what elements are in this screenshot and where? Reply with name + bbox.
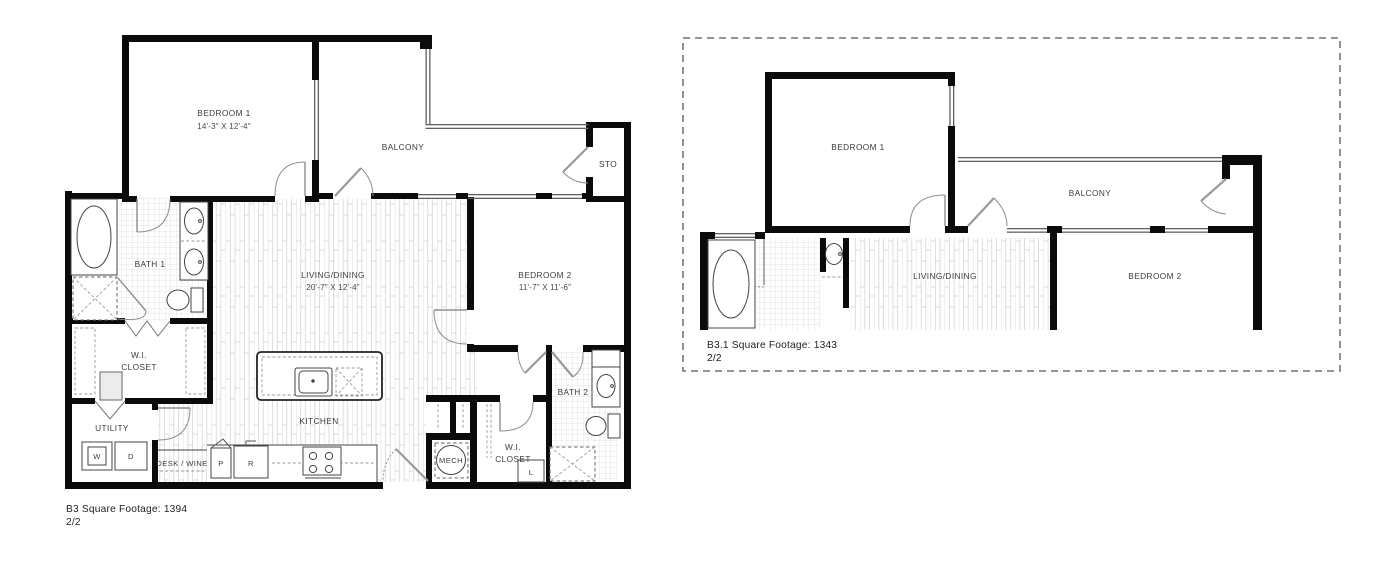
plan-b3: BEDROOM 1 14'-3" X 12'-4" BALCONY STO BA… <box>65 35 631 528</box>
kitchen-counter <box>207 445 377 482</box>
b31-living-wood-floor <box>851 238 1050 330</box>
b31-balcony-label: BALCONY <box>1069 188 1112 198</box>
b31-living-dining-label: LIVING/DINING <box>913 271 977 281</box>
bath1-label: BATH 1 <box>135 259 166 269</box>
utility-label: UTILITY <box>95 423 129 433</box>
b31-balcony-door <box>968 198 994 226</box>
plan-b3-floors <box>71 197 618 482</box>
closet1-shelves-left <box>75 328 95 394</box>
plan-b3-windows <box>314 49 589 199</box>
wi-closet1-label-line1: W.I. <box>131 350 147 360</box>
plan-b3-footer-line2: 2/2 <box>66 517 81 528</box>
desk-wine-label: DESK / WINE <box>156 459 207 468</box>
bath2-vanity <box>592 350 620 407</box>
bedroom1-label: BEDROOM 1 <box>197 108 250 118</box>
bath2-label: BATH 2 <box>558 387 589 397</box>
plan-b31-floors <box>757 238 1050 330</box>
plan-b31-footer-line2: 2/2 <box>707 353 722 364</box>
balcony-label: BALCONY <box>382 142 425 152</box>
plan-b3-footer: B3 Square Footage: 1394 2/2 <box>66 504 187 528</box>
bathtub <box>71 199 117 275</box>
living-dining-dims: 20'-7" X 12'-4" <box>306 283 360 292</box>
stove <box>303 447 341 475</box>
b31-bedroom1-label: BEDROOM 1 <box>831 142 884 152</box>
plan-b31-windows <box>715 86 1222 238</box>
b31-balcony-railing <box>958 157 1222 158</box>
b31-bathtub <box>708 240 755 328</box>
bedroom2-label: BEDROOM 2 <box>518 270 571 280</box>
storage-door <box>563 147 588 172</box>
floorplan-canvas: BEDROOM 1 14'-3" X 12'-4" BALCONY STO BA… <box>0 0 1400 586</box>
dryer-label: D <box>128 452 134 461</box>
closet2-shelves <box>487 404 491 458</box>
bedroom2-dims: 11'-7" X 11'-6" <box>519 283 571 292</box>
utility-bifold-door <box>95 401 125 419</box>
balcony-door <box>335 168 361 196</box>
mech-label: MECH <box>439 456 463 465</box>
plan-b3-footer-line1: B3 Square Footage: 1394 <box>66 504 187 515</box>
bedroom1-dims: 14'-3" X 12'-4" <box>197 122 251 131</box>
wi-closet2-label-line2: CLOSET <box>495 454 531 464</box>
closet1-bifold-door <box>125 321 170 336</box>
floorplan-sheet: BEDROOM 1 14'-3" X 12'-4" BALCONY STO BA… <box>0 0 1400 586</box>
closet2-entry-door <box>525 352 546 373</box>
living-dining-label: LIVING/DINING <box>301 270 365 280</box>
bath2-toilet <box>586 417 606 436</box>
plan-b31: BEDROOM 1 BALCONY LIVING/DINING BEDROOM … <box>683 38 1340 371</box>
b31-sink <box>826 244 843 265</box>
balcony-railing-vertical <box>426 49 427 125</box>
kitchen-label: KITCHEN <box>299 416 338 426</box>
closet1-shelves-right <box>186 328 205 394</box>
refrigerator-label: R <box>248 459 254 468</box>
pantry-label: P <box>218 459 223 468</box>
storage-label: STO <box>599 159 617 169</box>
plan-b31-footer: B3.1 Square Footage: 1343 2/2 <box>707 340 837 364</box>
b31-balcony-end-door <box>1201 179 1226 201</box>
wi-closet2-label-line1: W.I. <box>505 442 521 452</box>
plan-b31-footer-line1: B3.1 Square Footage: 1343 <box>707 340 837 351</box>
bath1-toilet <box>167 290 189 310</box>
closet1-dresser <box>100 372 122 400</box>
wi-closet1-label-line2: CLOSET <box>121 362 157 372</box>
b31-bath-tile-floor <box>757 238 821 330</box>
balcony-railing-horizontal <box>426 124 589 125</box>
b31-bedroom2-label: BEDROOM 2 <box>1128 271 1181 281</box>
linen-label: L <box>529 468 534 477</box>
washer-label: W <box>93 452 101 461</box>
